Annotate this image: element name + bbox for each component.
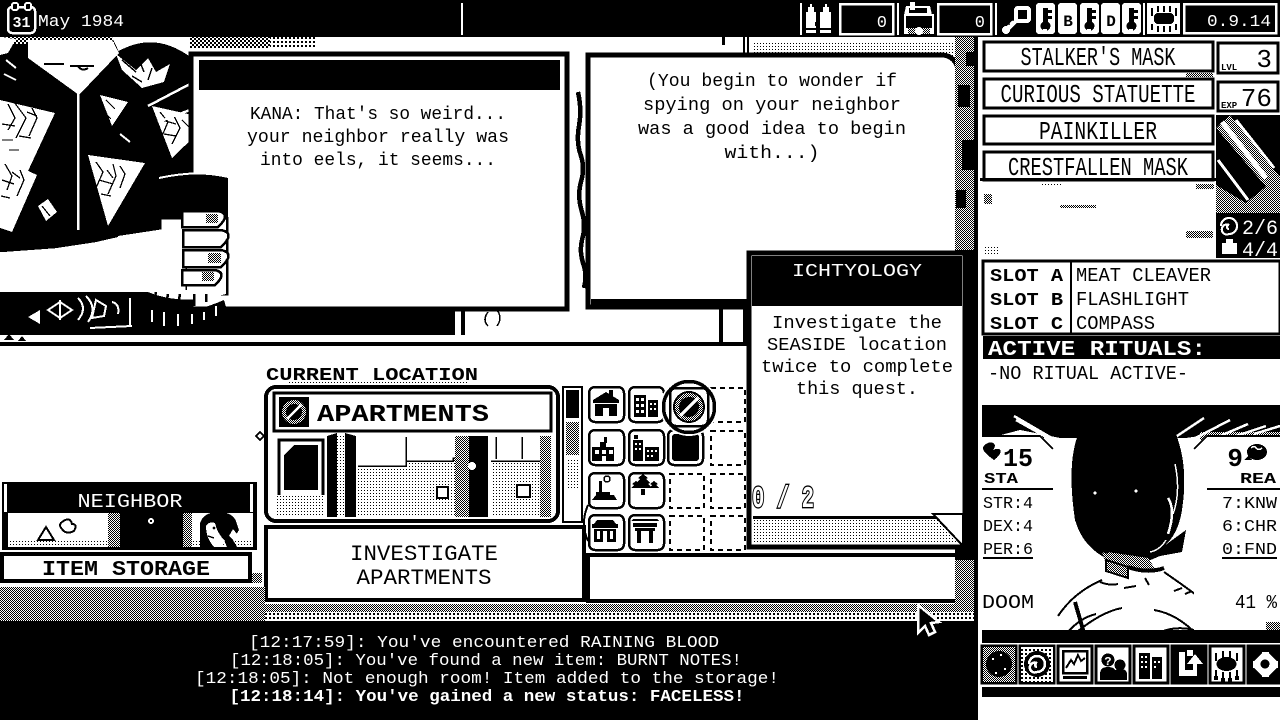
svg-text:this quest.: this quest. (796, 380, 918, 400)
svg-text:into eels, it seems...: into eels, it seems... (260, 151, 496, 171)
svg-text:SEASIDE location: SEASIDE location (767, 336, 947, 356)
svg-text:DEX:4: DEX:4 (983, 518, 1033, 537)
svg-text:MEAT CLEAVER: MEAT CLEAVER (1076, 265, 1211, 287)
svg-text:B: B (1063, 13, 1073, 31)
svg-text:0: 0 (877, 14, 887, 33)
svg-text:FLASHLIGHT: FLASHLIGHT (1076, 289, 1189, 311)
svg-text:41 %: 41 % (1235, 592, 1278, 614)
svg-text:-NO RITUAL ACTIVE-: -NO RITUAL ACTIVE- (988, 363, 1188, 385)
svg-text:STR:4: STR:4 (983, 495, 1033, 514)
svg-text:3: 3 (1256, 45, 1272, 75)
svg-text:31: 31 (12, 15, 30, 32)
svg-text:76: 76 (1241, 84, 1272, 114)
svg-text:?: ? (1104, 655, 1111, 669)
svg-text:ITEM STORAGE: ITEM STORAGE (42, 559, 210, 582)
svg-text:your neighbor really was: your neighbor really was (247, 128, 509, 148)
svg-text:with...): with...) (725, 144, 820, 164)
svg-text:DOOM: DOOM (982, 592, 1034, 614)
svg-text:spying on your neighbor: spying on your neighbor (643, 96, 901, 116)
svg-text:ICHTYOLOGY: ICHTYOLOGY (792, 262, 922, 282)
svg-text:0: 0 (975, 14, 985, 33)
svg-text:SLOT B: SLOT B (990, 291, 1063, 311)
svg-text:2/6: 2/6 (1242, 218, 1278, 241)
svg-text:6:CHR: 6:CHR (1222, 518, 1277, 537)
svg-text:CURRENT LOCATION: CURRENT LOCATION (266, 366, 478, 386)
svg-text:APARTMENTS: APARTMENTS (317, 402, 489, 429)
svg-text:SLOT C: SLOT C (990, 315, 1063, 335)
svg-text:COMPASS: COMPASS (1076, 313, 1155, 335)
svg-text:INVESTIGATE: INVESTIGATE (350, 542, 498, 567)
svg-text:ACTIVE RITUALS:: ACTIVE RITUALS: (988, 339, 1206, 362)
svg-text:7:KNW: 7:KNW (1222, 495, 1278, 514)
svg-text:D: D (1106, 13, 1116, 31)
svg-text:[12:18:05]: Not enough room! I: [12:18:05]: Not enough room! Item added … (195, 670, 779, 689)
svg-text:STALKER'S MASK: STALKER'S MASK (1021, 43, 1176, 73)
svg-text:was a good idea to begin: was a good idea to begin (638, 120, 906, 140)
svg-text:STA: STA (984, 471, 1018, 488)
svg-text:9: 9 (1227, 444, 1243, 474)
svg-text:LVL: LVL (1221, 63, 1237, 73)
svg-text:May 1984: May 1984 (38, 13, 124, 32)
svg-text:KANA: That's so weird...: KANA: That's so weird... (250, 105, 506, 125)
svg-text:NEIGHBOR: NEIGHBOR (78, 491, 183, 513)
svg-text:EXP: EXP (1221, 101, 1238, 111)
svg-text:PAINKILLER: PAINKILLER (1039, 117, 1157, 147)
svg-text:0 / 2: 0 / 2 (752, 482, 814, 517)
svg-text:[12:17:59]: You've encountered: [12:17:59]: You've encountered RAINING B… (249, 634, 719, 653)
svg-text:[12:18:14]: You've gained a ne: [12:18:14]: You've gained a new status: … (230, 688, 745, 707)
svg-text:Investigate the: Investigate the (772, 314, 942, 334)
svg-text:SLOT A: SLOT A (990, 267, 1063, 287)
svg-text:15: 15 (1003, 444, 1033, 474)
svg-text:[12:18:05]: You've found a new: [12:18:05]: You've found a new item: BUR… (230, 652, 742, 671)
svg-text:CURIOUS STATUETTE: CURIOUS STATUETTE (1001, 80, 1196, 110)
svg-text:0.9.14: 0.9.14 (1207, 13, 1271, 32)
svg-text:REA: REA (1240, 471, 1276, 488)
svg-text:twice to complete: twice to complete (761, 358, 953, 378)
svg-text:(You begin to wonder if: (You begin to wonder if (647, 72, 897, 92)
svg-text:APARTMENTS: APARTMENTS (357, 566, 492, 591)
